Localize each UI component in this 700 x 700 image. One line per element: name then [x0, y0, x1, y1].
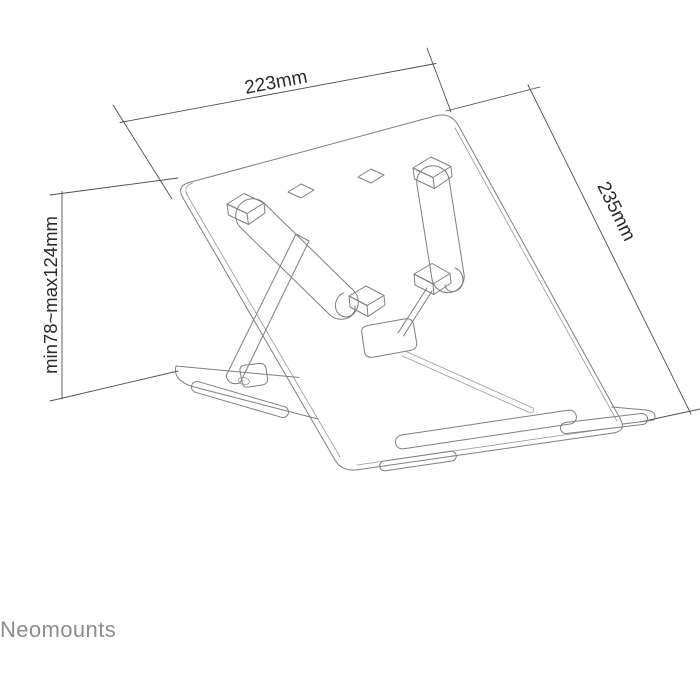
height-extension-line-bottom — [50, 371, 178, 401]
hook-middle-left-side — [368, 296, 385, 317]
plate-corner-detail-topleft — [186, 183, 193, 196]
depth-dimension-line — [528, 85, 691, 414]
plate-hole-left — [288, 184, 314, 198]
hook-middle-left-curl — [335, 293, 355, 317]
depth-extension-line-top — [446, 87, 540, 111]
stand-bracket — [227, 157, 464, 319]
base-front-edge-left — [198, 388, 318, 419]
tab-topleft-side — [249, 203, 266, 225]
height-extension-line-top — [50, 178, 178, 195]
base-foot-bar-right — [561, 413, 648, 433]
stand-kickstand — [226, 234, 534, 413]
hook-middle-right-curl — [445, 268, 463, 292]
bracket-foot-pad — [362, 319, 417, 358]
kickstand-leg-edge-1 — [226, 234, 296, 376]
depth-dimension-label: 235mm — [592, 179, 639, 245]
laptop-stand-diagram: 223mm 235mm min78~max124mm — [0, 0, 700, 700]
hook-middle-left-topface — [349, 286, 384, 306]
base-rear-edge-right — [612, 407, 646, 410]
tab-topleft-topface — [227, 194, 264, 214]
plate-right-edge-thickness — [455, 128, 617, 421]
width-extension-line-right — [427, 48, 451, 112]
base-foot-bar-left — [191, 381, 288, 417]
base-right-tip — [623, 410, 655, 424]
kickstand-leg-edge-2 — [240, 241, 309, 383]
support-rod-edge-2 — [403, 356, 531, 413]
tab-topright-front — [413, 168, 435, 189]
diagram-canvas: 223mm 235mm min78~max124mm — [0, 0, 700, 700]
hook-middle-right-front — [414, 274, 434, 295]
dimension-depth: 235mm — [446, 85, 700, 422]
plate-outline — [181, 115, 623, 470]
plate-left-edge-thickness — [186, 193, 340, 457]
base-left-tip — [175, 366, 198, 388]
height-dimension-label: min78~max124mm — [40, 216, 61, 374]
support-rod-edge-1 — [405, 351, 533, 408]
width-extension-line-left — [113, 105, 172, 199]
dimension-width: 223mm — [113, 48, 451, 199]
plate-hole-right — [358, 169, 384, 183]
base-slot-cutout — [395, 410, 576, 449]
brand-logo-text: Neomounts — [0, 617, 116, 642]
bracket-strut-edge-1 — [398, 288, 427, 333]
bracket-strut-edge-2 — [404, 291, 433, 336]
dimension-height: min78~max124mm — [40, 178, 178, 401]
kickstand-leg-foot — [226, 376, 240, 384]
kickstand-pivot — [238, 376, 250, 385]
stand-main-plate — [181, 115, 623, 471]
slot-left-arm — [236, 199, 359, 320]
base-rear-edge-left — [176, 366, 299, 378]
stand-drawing — [175, 115, 655, 471]
width-dimension-label: 223mm — [243, 66, 309, 98]
support-rod-cap — [531, 408, 534, 413]
